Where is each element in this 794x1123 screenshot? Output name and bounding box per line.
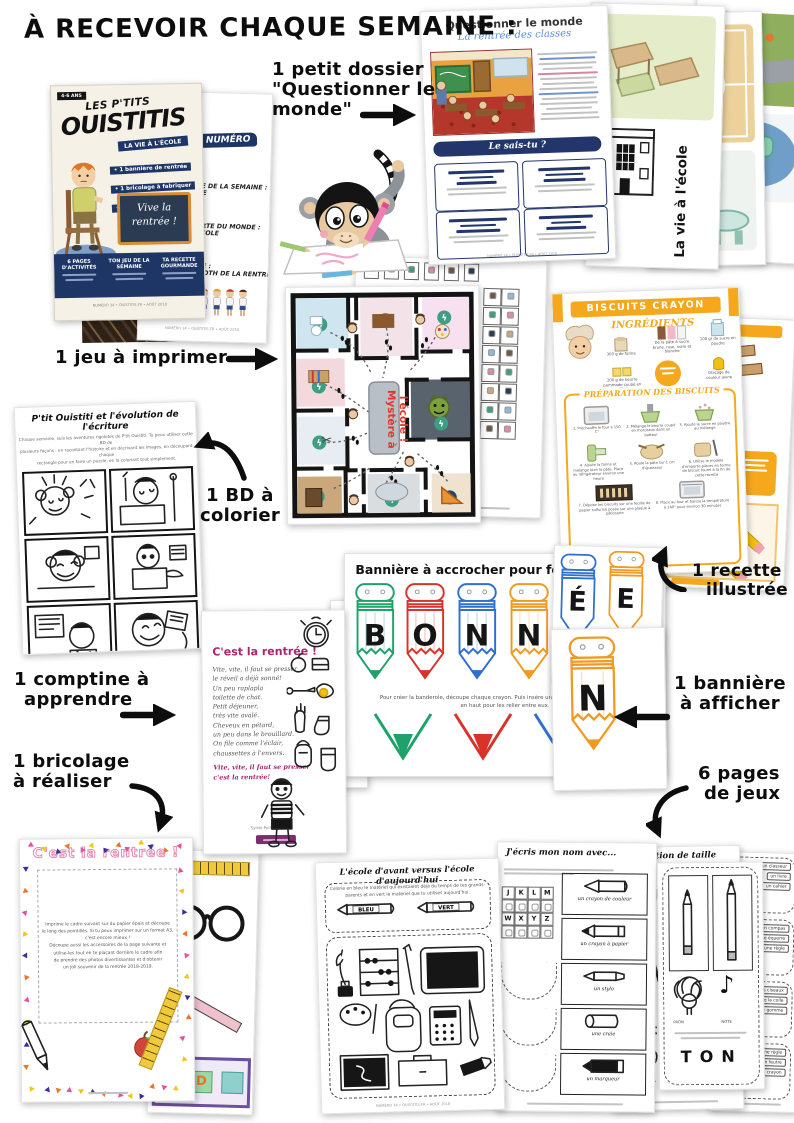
paon-label: PAON [673,1019,683,1024]
game-page-nom: J'écris mon nom avec... JKLM WXYZ un cra… [495,841,657,1112]
text-placeholder [536,48,601,123]
annotation-bd: 1 BD à colorier [206,486,280,526]
theme-badge: LA VIE À L'ÉCOLE [118,136,188,152]
cover-band: 6 PAGES D'ACTIVITÉS TON JEU DE LA SEMAIN… [54,252,205,299]
morning-doodles [286,616,341,776]
svg-text:ϟ: ϟ [441,313,447,323]
confetti-triangle [176,843,182,849]
svg-text:N: N [578,678,608,720]
arrow-curved-down-left-icon [646,782,690,840]
confetti-triangle [22,908,30,916]
monkey-mascot [278,148,430,282]
svg-text:E: E [616,584,635,615]
confetti-triangle [186,1014,193,1022]
quiz-banner: Le sais-tu ? [433,136,601,157]
svg-text:N: N [517,619,542,654]
recipe-title-banner: BISCUITS CRAYON [570,296,720,317]
magazine-cover: 4-6 ANS LES P'TITS OUISTITIS LA VIE À L'… [50,83,206,322]
chalkboard: Vive la rentrée ! [117,192,192,245]
items-box [326,933,496,1099]
bd-intro: Chaque semaine, suis les aventures rigol… [16,431,197,467]
pennant-tip [451,712,515,764]
arrow-right-icon [226,348,284,370]
annotation-comptine: 1 comptine à apprendre [14,670,149,710]
confetti-triangle [185,993,192,1001]
recipe-step: 5. Roule la pâte sur 1 cm d'épaisseur [625,439,678,481]
recipe-step: 1. Préchauffe le four à 150 C° [570,403,623,440]
alphabet-grid: JKLM WXYZ [501,886,555,938]
confetti-triangle [56,848,62,855]
recipe-step: 7. Dépose tes biscuits sur une feuille d… [576,481,653,517]
ingredient: 100 gr de sucre en poudre [699,318,736,346]
quiz-box [522,158,608,209]
confetti-triangle [138,839,145,847]
ton-letters: TON [660,1047,764,1067]
pennant-tip [371,712,435,764]
legend-box: Colorie en bleu le matériel qui existaie… [324,879,491,933]
craft-instructions: Imprime le cadre suivant sur du papier é… [42,921,174,971]
crayon-bleu-icon: BLEU [335,900,401,918]
pennant-letter: O [403,582,447,682]
tool-item: un crayon à papier [561,918,647,961]
confetti-triangle [22,864,29,872]
confetti-triangle [178,867,185,874]
age-tag: 4-6 ANS [57,92,86,100]
recipe-step: 8. Place au four et baisse la températur… [654,479,731,515]
svg-text:BLEU: BLEU [358,907,374,913]
bd-panel [113,600,199,655]
pennant-letter: B [353,582,397,682]
cover-footer: NUMÉRO 34 • OUISTITIS.FR • AOÛT 2018 [55,302,205,309]
recipe-step: 3. Ajoute le sucre en poudre au mélange [678,399,731,436]
ingredient: Glaçage de couleur jaune [700,354,737,380]
comptine-page: C'est la rentrée ! Vite, vite, il faut s… [201,609,347,854]
bd-panel [26,603,112,655]
pencil-doodle [21,1015,52,1075]
confetti-triangle [88,842,94,848]
crayon-vert-icon: VERT [414,898,480,916]
quiz-box [434,161,520,212]
annotation-jeux: 6 pages de jeux [698,764,780,804]
text-placeholder [671,1029,749,1043]
svg-text:ϟ: ϟ [316,383,322,393]
confetti-triangle [101,846,109,854]
dashed-arc [500,1054,556,1091]
svg-text:É: É [568,585,587,617]
classroom-desks-illustration [595,13,716,120]
pencil-box [668,875,709,971]
tool-item: un crayon de couleur [562,873,648,916]
tool-item: une craie [560,1008,646,1051]
tool-item: un stylo [561,963,647,1006]
svg-text:N: N [465,619,490,654]
confetti-triangle [182,931,187,937]
svg-text:VERT: VERT [438,905,454,911]
svg-text:✂: ✂ [321,433,332,448]
recipe-step: 4. Ajoute la farine et mélange bien la p… [571,440,624,482]
game1-footer: NUMÉRO 34 • OUISTITIS.FR • AOÛT 2018 [322,1101,504,1110]
svg-text:B: B [364,619,387,654]
dossier-page: Questionner le monde La rentrée des clas… [420,5,617,265]
quiz-box [436,209,522,260]
svg-text:Mystère à: Mystère à [385,390,398,449]
chef-illustration [561,323,598,364]
confetti-triangle [161,847,169,855]
confetti-triangle [182,951,190,959]
confetti-triangle [179,1036,186,1042]
confetti-triangle [180,909,188,916]
recipe-step: 2. Mélange le beurre coupé en morceaux d… [624,401,677,438]
annotation-dossier: 1 petit dossier "Questionner le monde" [272,60,435,119]
game-page-comparison: PAON ♪ NOTE TON [657,862,765,1091]
annotation-jeu: 1 jeu à imprimer [55,348,227,368]
comptine-poem: Vite, vite, il faut se presserle réveil … [212,665,297,759]
confetti-triangle [22,953,30,960]
prep-box: PRÉPARATION DES BISCUITS 1. Préchauffe l… [564,388,742,570]
confetti-triangle [148,844,155,850]
confetti-triangle [78,847,86,854]
bd-panels [17,464,204,655]
arrow-curved-down-icon [128,780,174,834]
annotation-banniere: 1 bannière à afficher [674,674,786,714]
annotation-bricolage: 1 bricolage à réaliser [13,752,129,792]
confetti-triangle [22,887,29,893]
peacock-doodle [669,975,709,1017]
confetti-triangle [64,843,71,850]
game-page-avant-apres: L'école d'avant versus l'école d'aujourd… [315,858,506,1115]
confetti-triangle [23,931,29,938]
vie-ecole-label: La vie à l'école [672,126,691,258]
music-note-icon: ♪ [719,971,735,999]
note-label: NOTE [721,1019,732,1024]
recipe-page1: BISCUITS CRAYON INGRÉDIENTS 300 g de far… [551,287,749,577]
svg-text:O: O [412,619,437,654]
photo-frame: Imprime le cadre suivant sur du papier é… [37,868,178,1023]
confetti-triangle [184,973,191,979]
pennant-letter: N [455,582,499,682]
confetti-triangle [180,1056,188,1064]
pencil-box [712,875,753,971]
confetti-triangle [23,997,29,1004]
confetti-triangle [22,975,29,982]
boy-doodle [259,775,308,849]
confetti-triangle [115,841,122,847]
dashed-arc [500,1008,556,1045]
page-title: À RECEVOIR CHAQUE SEMAINE : [24,12,518,44]
bd-panel [21,469,107,536]
flyer-canvas: À RECEVOIR CHAQUE SEMAINE : CE NUMÉRO ★ … [0,0,794,1123]
bd-panel [108,466,194,533]
toc-footer: NUMÉRO 34 • OUISTITIS.FR • AOÛT 2018 [138,325,266,332]
tool-item: un marqueur [560,1053,646,1096]
maze-title: Mystère à l'école ! [385,390,410,449]
arrow-left-icon [608,706,670,728]
recipe-step: 6. Utilise le modèle d'emporte-pièces en… [679,437,732,479]
arrow-curved-up-left-icon [190,432,248,482]
boy-illustration [52,147,118,266]
confetti-triangle [28,842,34,847]
confetti-triangle [124,845,131,853]
ingredient: 300 g de farine [600,335,643,357]
dashed-arc [501,962,557,999]
game2-title: J'écris mon nom avec... [506,847,616,858]
confetti-triangle [41,844,49,852]
craft-page1: C'est la rentrée ! Imprime le cadre suiv… [19,837,195,1103]
svg-text:l'école !: l'école ! [397,396,409,443]
classroom-scene [430,48,535,136]
time-badge [655,360,682,387]
svg-text:ϟ: ϟ [438,419,444,429]
confetti-triangle [179,888,186,895]
arrow-curved-up-icon [652,544,690,592]
bd-panel [111,533,197,600]
maze-board-page: Mystère à l'école ! ϟ ϟ ϟ ϟ ϟ ϟ ϟ ϟ ➤ ✂ [285,285,481,525]
card-columns [480,288,540,441]
writing-tools-list: un crayon de couleur un crayon à papier … [560,873,648,1099]
ingredient: De la pâte à sucre brune, rose, noire et… [647,323,696,354]
brand-line2: OUISTITIS [60,103,187,142]
pennant-letter: N [566,635,620,754]
bd-page: P'tit Ouistiti et l'évolution de l'écrit… [14,401,205,655]
bd-panel [24,536,110,603]
pennant-letter: N [507,582,551,682]
annotation-recette: 1 recette illustrée [692,562,788,599]
quiz-box [524,206,610,257]
